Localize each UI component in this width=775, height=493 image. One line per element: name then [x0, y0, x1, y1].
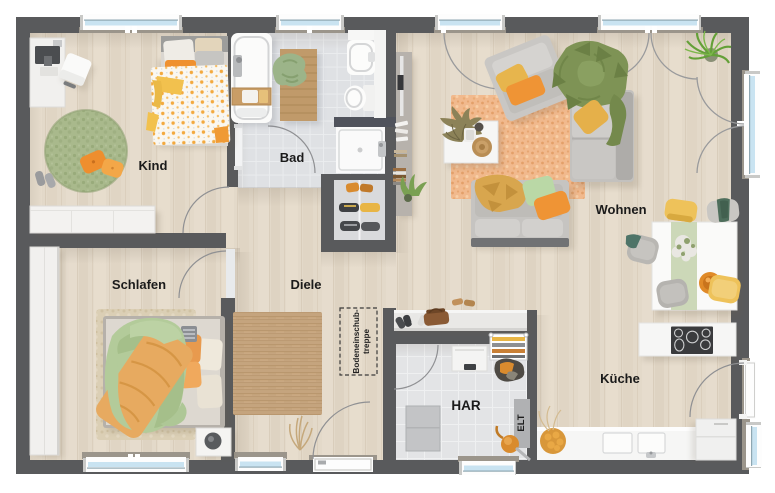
- svg-text:treppe: treppe: [362, 329, 371, 354]
- svg-text:Wohnen: Wohnen: [595, 202, 646, 217]
- svg-text:ELT: ELT: [516, 414, 527, 431]
- svg-text:Schlafen: Schlafen: [112, 277, 166, 292]
- svg-text:Kind: Kind: [139, 158, 168, 173]
- svg-text:Küche: Küche: [600, 371, 640, 386]
- svg-text:HAR: HAR: [451, 398, 480, 413]
- svg-text:Diele: Diele: [290, 277, 321, 292]
- svg-text:Bad: Bad: [280, 150, 305, 165]
- svg-text:Bodeneinschub-: Bodeneinschub-: [352, 309, 361, 373]
